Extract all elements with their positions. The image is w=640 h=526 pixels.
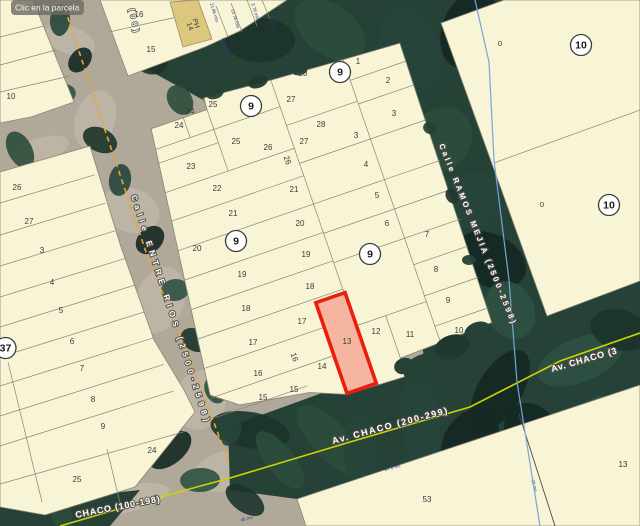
svg-text:3: 3: [40, 246, 45, 255]
svg-text:21: 21: [290, 185, 299, 194]
svg-text:20: 20: [193, 244, 202, 253]
svg-text:25: 25: [73, 475, 82, 484]
svg-text:26: 26: [13, 183, 22, 192]
svg-text:25: 25: [232, 137, 241, 146]
svg-text:37: 37: [0, 343, 11, 355]
svg-text:24: 24: [148, 446, 157, 455]
svg-text:10: 10: [603, 200, 615, 212]
svg-text:15: 15: [290, 385, 299, 394]
svg-text:0: 0: [498, 39, 502, 48]
svg-text:12: 12: [372, 327, 381, 336]
svg-text:20: 20: [296, 219, 305, 228]
svg-text:27: 27: [300, 137, 309, 146]
svg-text:23: 23: [187, 162, 196, 171]
svg-text:21: 21: [229, 209, 238, 218]
svg-text:17: 17: [298, 317, 307, 326]
svg-text:5: 5: [375, 191, 380, 200]
svg-text:10: 10: [575, 40, 587, 52]
svg-text:10: 10: [455, 326, 464, 335]
svg-text:0: 0: [540, 200, 544, 209]
svg-text:6: 6: [385, 219, 390, 228]
svg-text:24: 24: [186, 107, 195, 116]
svg-text:27: 27: [287, 95, 296, 104]
svg-text:19: 19: [238, 270, 247, 279]
svg-text:15: 15: [259, 393, 268, 402]
svg-text:Clic en la parcela: Clic en la parcela: [15, 3, 80, 13]
svg-text:22: 22: [213, 184, 222, 193]
svg-text:14: 14: [318, 362, 327, 371]
svg-text:4: 4: [364, 160, 369, 169]
svg-text:9: 9: [233, 236, 239, 248]
svg-text:1: 1: [356, 57, 361, 66]
svg-text:26: 26: [264, 143, 273, 152]
svg-text:16: 16: [254, 369, 263, 378]
svg-text:9: 9: [367, 249, 373, 261]
svg-text:4: 4: [50, 278, 55, 287]
svg-text:11: 11: [406, 330, 415, 339]
svg-text:3: 3: [354, 131, 359, 140]
svg-text:9: 9: [101, 422, 106, 431]
svg-text:27: 27: [25, 217, 34, 226]
svg-text:13: 13: [619, 460, 628, 469]
svg-text:25: 25: [209, 100, 218, 109]
svg-text:13: 13: [343, 337, 352, 346]
svg-text:18: 18: [242, 304, 251, 313]
svg-text:5: 5: [59, 306, 64, 315]
svg-text:24: 24: [175, 121, 184, 130]
svg-text:7: 7: [425, 230, 430, 239]
svg-text:15: 15: [147, 45, 156, 54]
svg-text:28: 28: [317, 120, 326, 129]
svg-text:10: 10: [7, 92, 16, 101]
svg-text:17: 17: [249, 338, 258, 347]
svg-text:8: 8: [434, 265, 439, 274]
svg-text:6: 6: [70, 337, 75, 346]
svg-text:8: 8: [91, 395, 96, 404]
svg-text:3: 3: [392, 109, 397, 118]
svg-text:18: 18: [306, 282, 315, 291]
svg-text:9: 9: [446, 296, 451, 305]
svg-text:53: 53: [423, 495, 432, 504]
svg-text:19: 19: [302, 250, 311, 259]
svg-text:7: 7: [80, 364, 85, 373]
svg-text:2: 2: [386, 76, 391, 85]
svg-text:9: 9: [248, 101, 254, 113]
svg-text:9: 9: [337, 67, 343, 79]
